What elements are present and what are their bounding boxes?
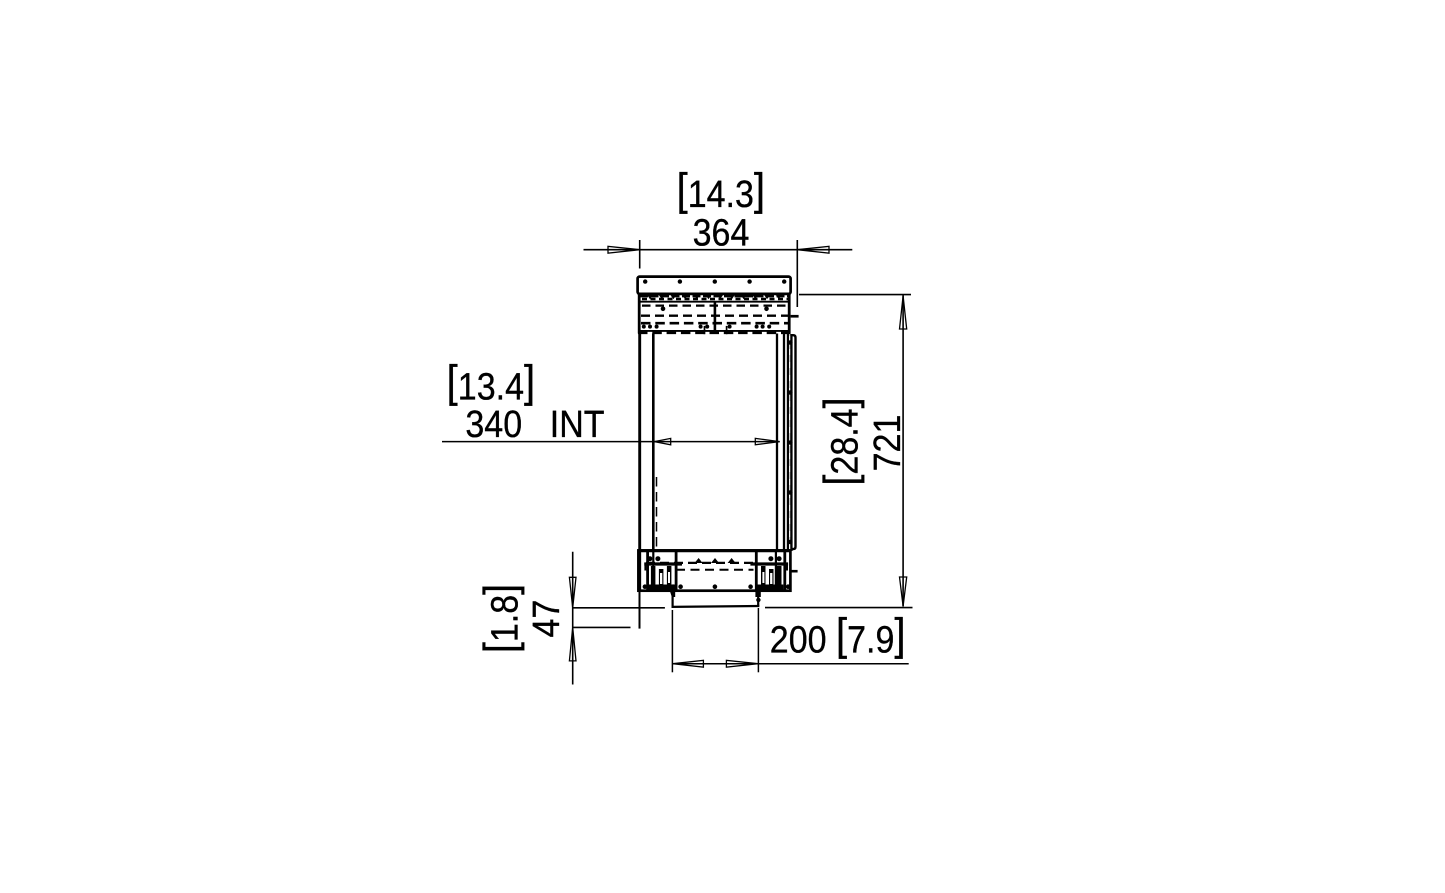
svg-text:[13.4]: [13.4] bbox=[447, 358, 535, 409]
svg-text:364: 364 bbox=[693, 212, 750, 255]
svg-text:47: 47 bbox=[526, 600, 569, 638]
svg-text:721: 721 bbox=[866, 415, 909, 472]
svg-text:INT: INT bbox=[550, 404, 605, 447]
svg-text:[28.4]: [28.4] bbox=[816, 397, 867, 485]
svg-text:200 [7.9]: 200 [7.9] bbox=[770, 611, 906, 662]
svg-text:[14.3]: [14.3] bbox=[677, 165, 765, 216]
svg-text:[1.8]: [1.8] bbox=[476, 584, 527, 654]
svg-text:340: 340 bbox=[465, 404, 522, 447]
